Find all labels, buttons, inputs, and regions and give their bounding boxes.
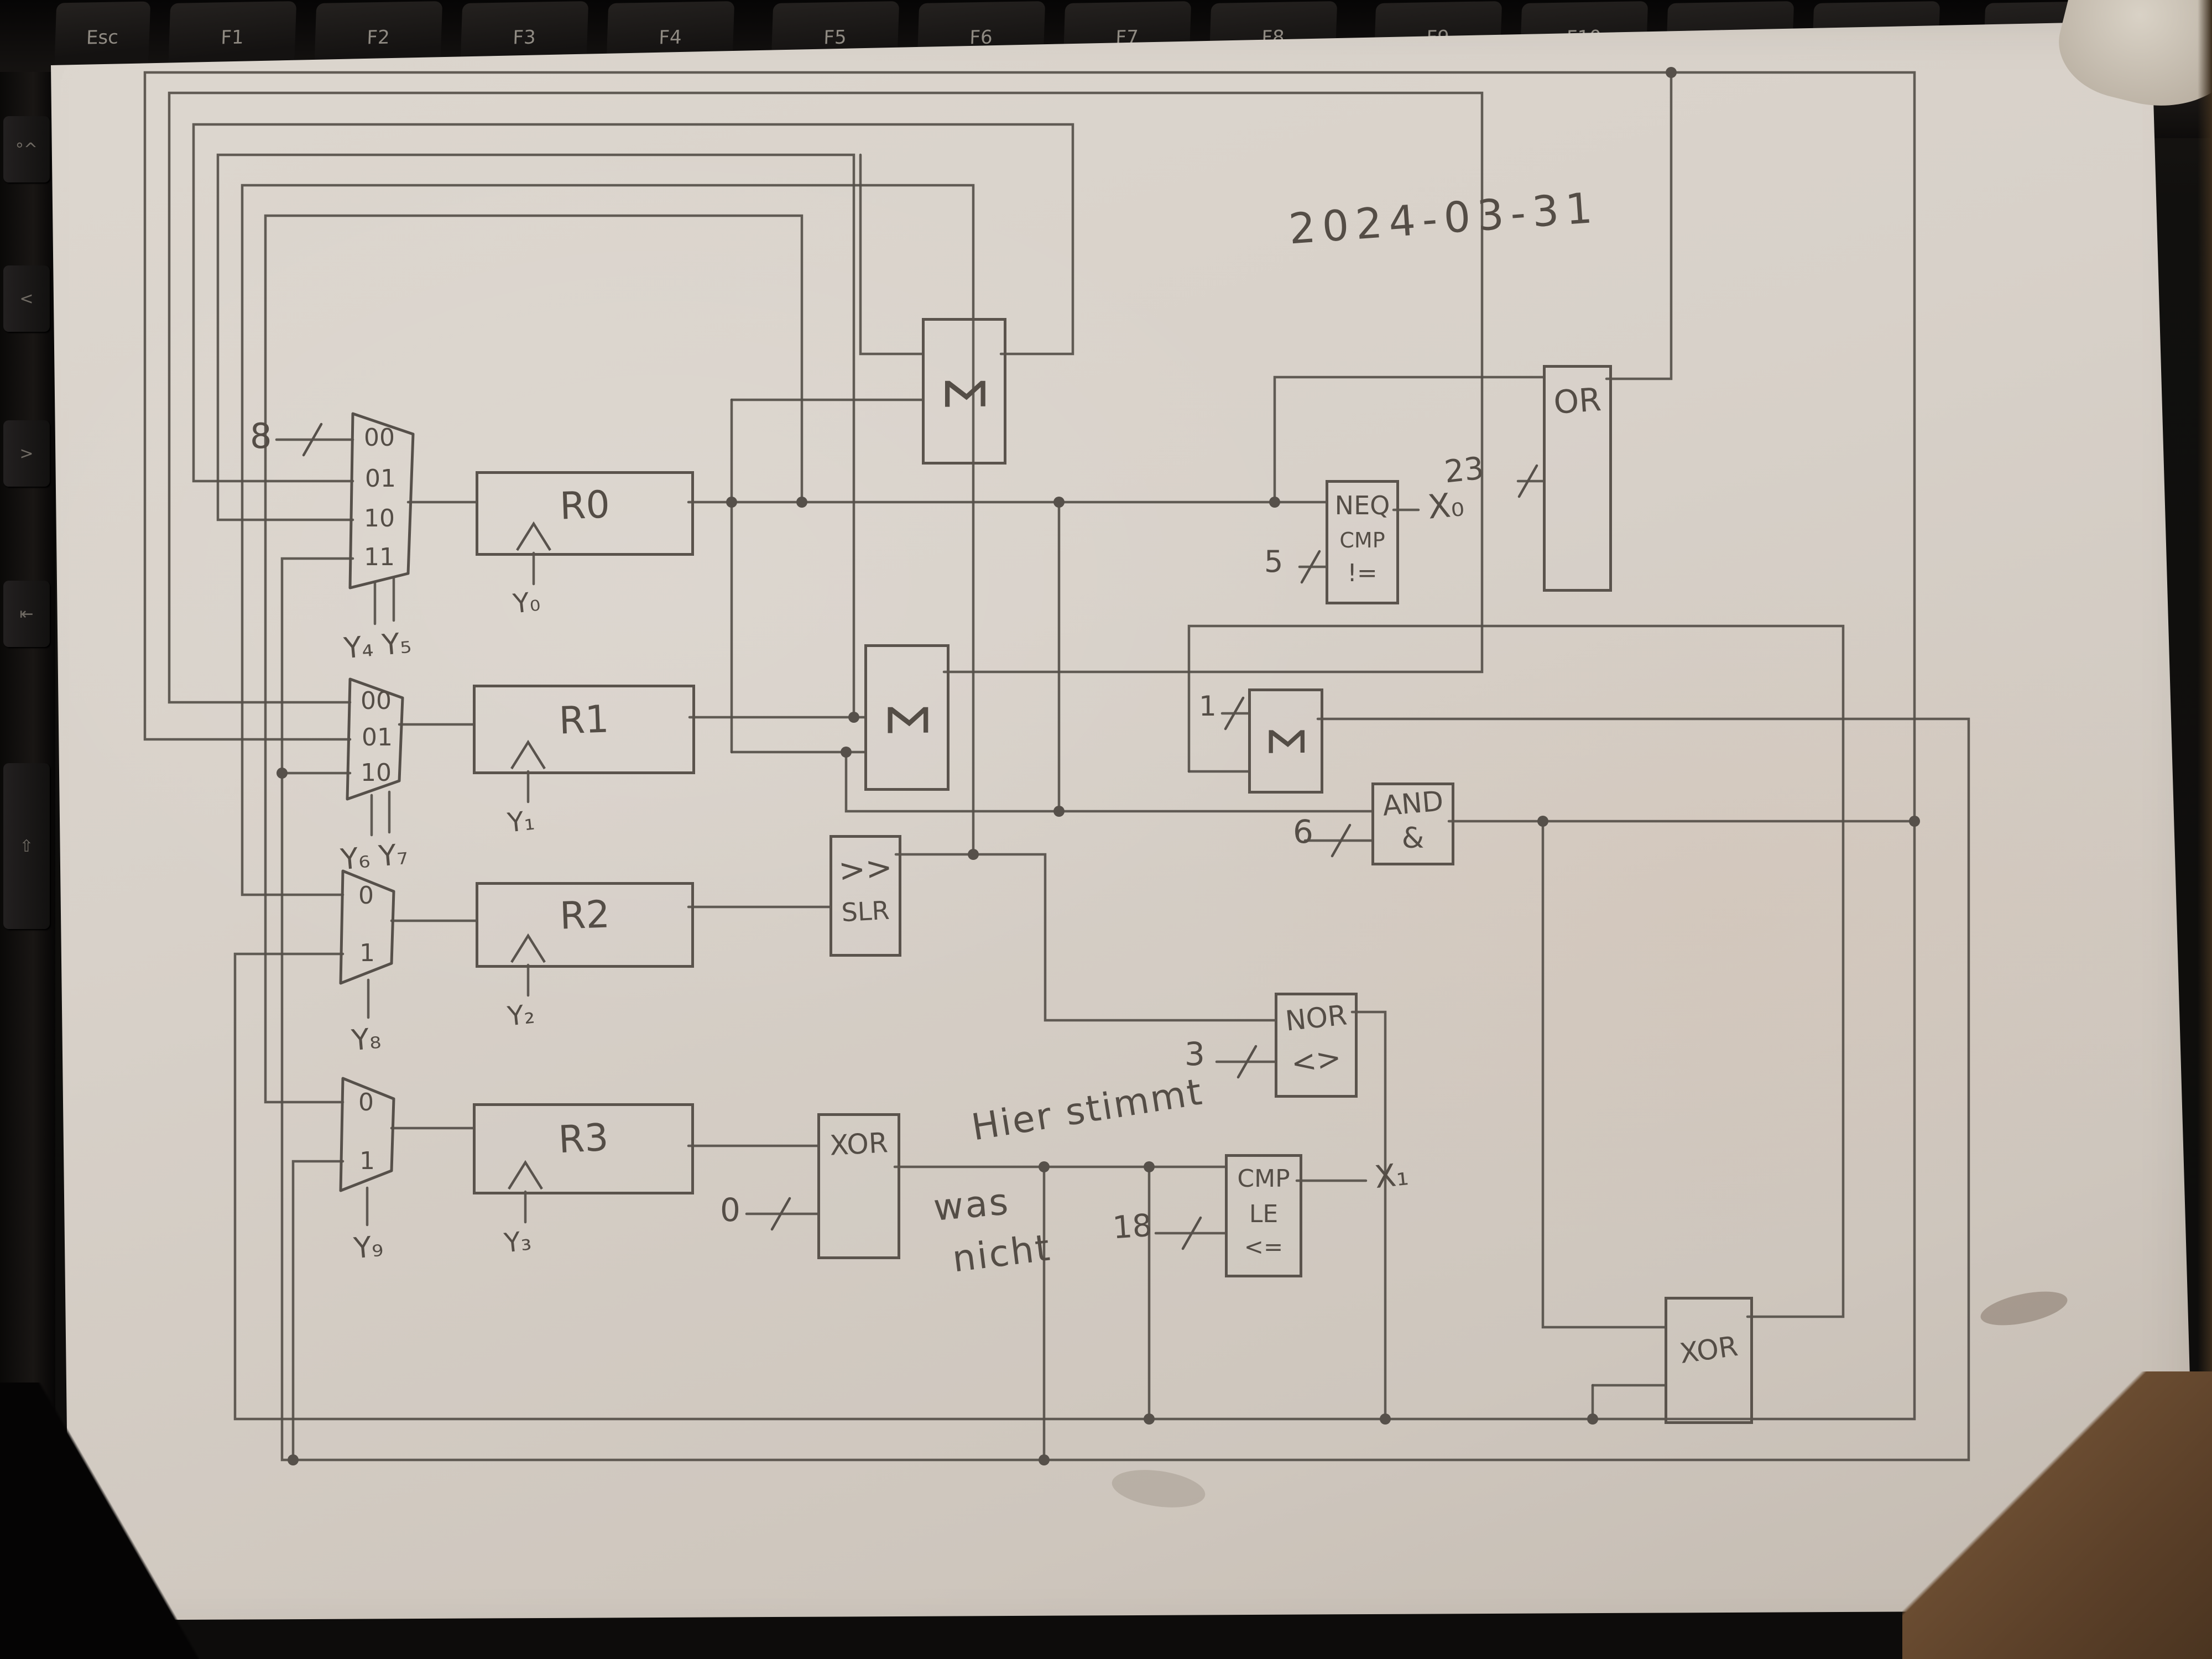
- const-23-or: 23: [1443, 450, 1486, 490]
- sigma-right-symbol: Σ: [1258, 706, 1314, 776]
- adder-sigma-top: Σ: [922, 318, 1006, 465]
- mux4-select-label: Y₉: [352, 1230, 384, 1265]
- output-x0: X₀: [1426, 485, 1465, 526]
- clock-label-y1: Y₁: [506, 805, 536, 839]
- nor-label: NOR: [1276, 998, 1356, 1038]
- const-5-neq: 5: [1264, 544, 1283, 579]
- xor2-label: XOR: [1666, 1328, 1752, 1371]
- table-bottom-right: [1902, 1371, 2212, 1659]
- gate-or: OR: [1543, 365, 1612, 592]
- mux3-port-1: 1: [359, 939, 375, 967]
- mux4-port-0: 0: [358, 1088, 374, 1117]
- clock-label-y0: Y₀: [512, 586, 541, 620]
- adder-sigma-mid: Σ: [864, 644, 950, 791]
- sigma-top-symbol: Σ: [932, 353, 997, 432]
- register-r2-label: R2: [478, 890, 692, 941]
- mux3-port-0: 0: [358, 881, 374, 910]
- laptop-bottom-left-corner: [0, 1383, 199, 1659]
- mux1-port-01: 01: [365, 465, 396, 493]
- clock-label-y2: Y₂: [506, 999, 536, 1032]
- circuit-wires-svg: [0, 0, 2212, 1659]
- register-r3: R3: [473, 1103, 694, 1194]
- gate-and: AND &: [1371, 782, 1454, 865]
- gate-xor-1: XOR: [817, 1113, 900, 1259]
- register-r0: R0: [476, 471, 694, 556]
- shifter-slr: >> SLR: [830, 835, 901, 957]
- clock-label-y3: Y₃: [503, 1225, 533, 1259]
- register-r1: R1: [473, 685, 695, 774]
- mux1-port-11: 11: [364, 543, 395, 571]
- neq-l2: CMP: [1328, 528, 1396, 552]
- comparator-le: CMP LE <=: [1225, 1154, 1302, 1277]
- const-3-nor: 3: [1185, 1035, 1205, 1073]
- mux1-port-00: 00: [364, 424, 395, 452]
- register-r3-label: R3: [474, 1112, 692, 1166]
- neq-l3: !=: [1328, 559, 1396, 587]
- gate-nor: NOR <>: [1275, 993, 1358, 1098]
- le-l1: CMP: [1228, 1165, 1300, 1193]
- mux2-port-01: 01: [362, 723, 393, 752]
- output-x1: X₁: [1373, 1156, 1410, 1196]
- photo-scene: EscF1F2F3F4F5F6F7F8F9F10F11F12Entf °^<>⇤…: [0, 0, 2212, 1659]
- and-label: AND: [1373, 784, 1453, 823]
- const-1-sigma3: 1: [1199, 690, 1217, 722]
- const-8-mux1: 8: [250, 416, 272, 456]
- mux2-port-00: 00: [361, 687, 392, 715]
- xor1-label: XOR: [820, 1126, 899, 1162]
- mux2-select-label: Y₆ Y₇: [340, 838, 410, 877]
- mux3-select-label: Y₈: [350, 1022, 382, 1057]
- mux1-port-10: 10: [364, 504, 395, 533]
- neq-l1: NEQ: [1328, 491, 1396, 520]
- le-l3: <=: [1228, 1233, 1300, 1260]
- mux2-port-10: 10: [361, 759, 392, 787]
- and-amp: &: [1374, 822, 1452, 855]
- mux1-select-label: Y₄ Y₅: [343, 627, 413, 665]
- mux4-port-1: 1: [359, 1147, 375, 1175]
- const-6-and: 6: [1293, 813, 1313, 851]
- const-18-le: 18: [1112, 1208, 1154, 1246]
- adder-sigma-right: Σ: [1248, 688, 1323, 794]
- const-0-xor1: 0: [720, 1191, 740, 1229]
- register-r0-label: R0: [478, 480, 692, 531]
- register-r2: R2: [476, 882, 694, 968]
- sigma-mid-symbol: Σ: [875, 680, 940, 759]
- le-l2: LE: [1228, 1200, 1300, 1228]
- comparator-neq: NEQ CMP !=: [1326, 480, 1399, 604]
- nor-sym: <>: [1275, 1038, 1357, 1083]
- note-line-2: was: [932, 1180, 1011, 1229]
- gate-xor-2: XOR: [1665, 1297, 1753, 1424]
- register-r1-label: R1: [475, 695, 693, 746]
- or-label: OR: [1545, 380, 1610, 422]
- slr-text: SLR: [832, 895, 900, 928]
- slr-arrows: >>: [831, 848, 900, 890]
